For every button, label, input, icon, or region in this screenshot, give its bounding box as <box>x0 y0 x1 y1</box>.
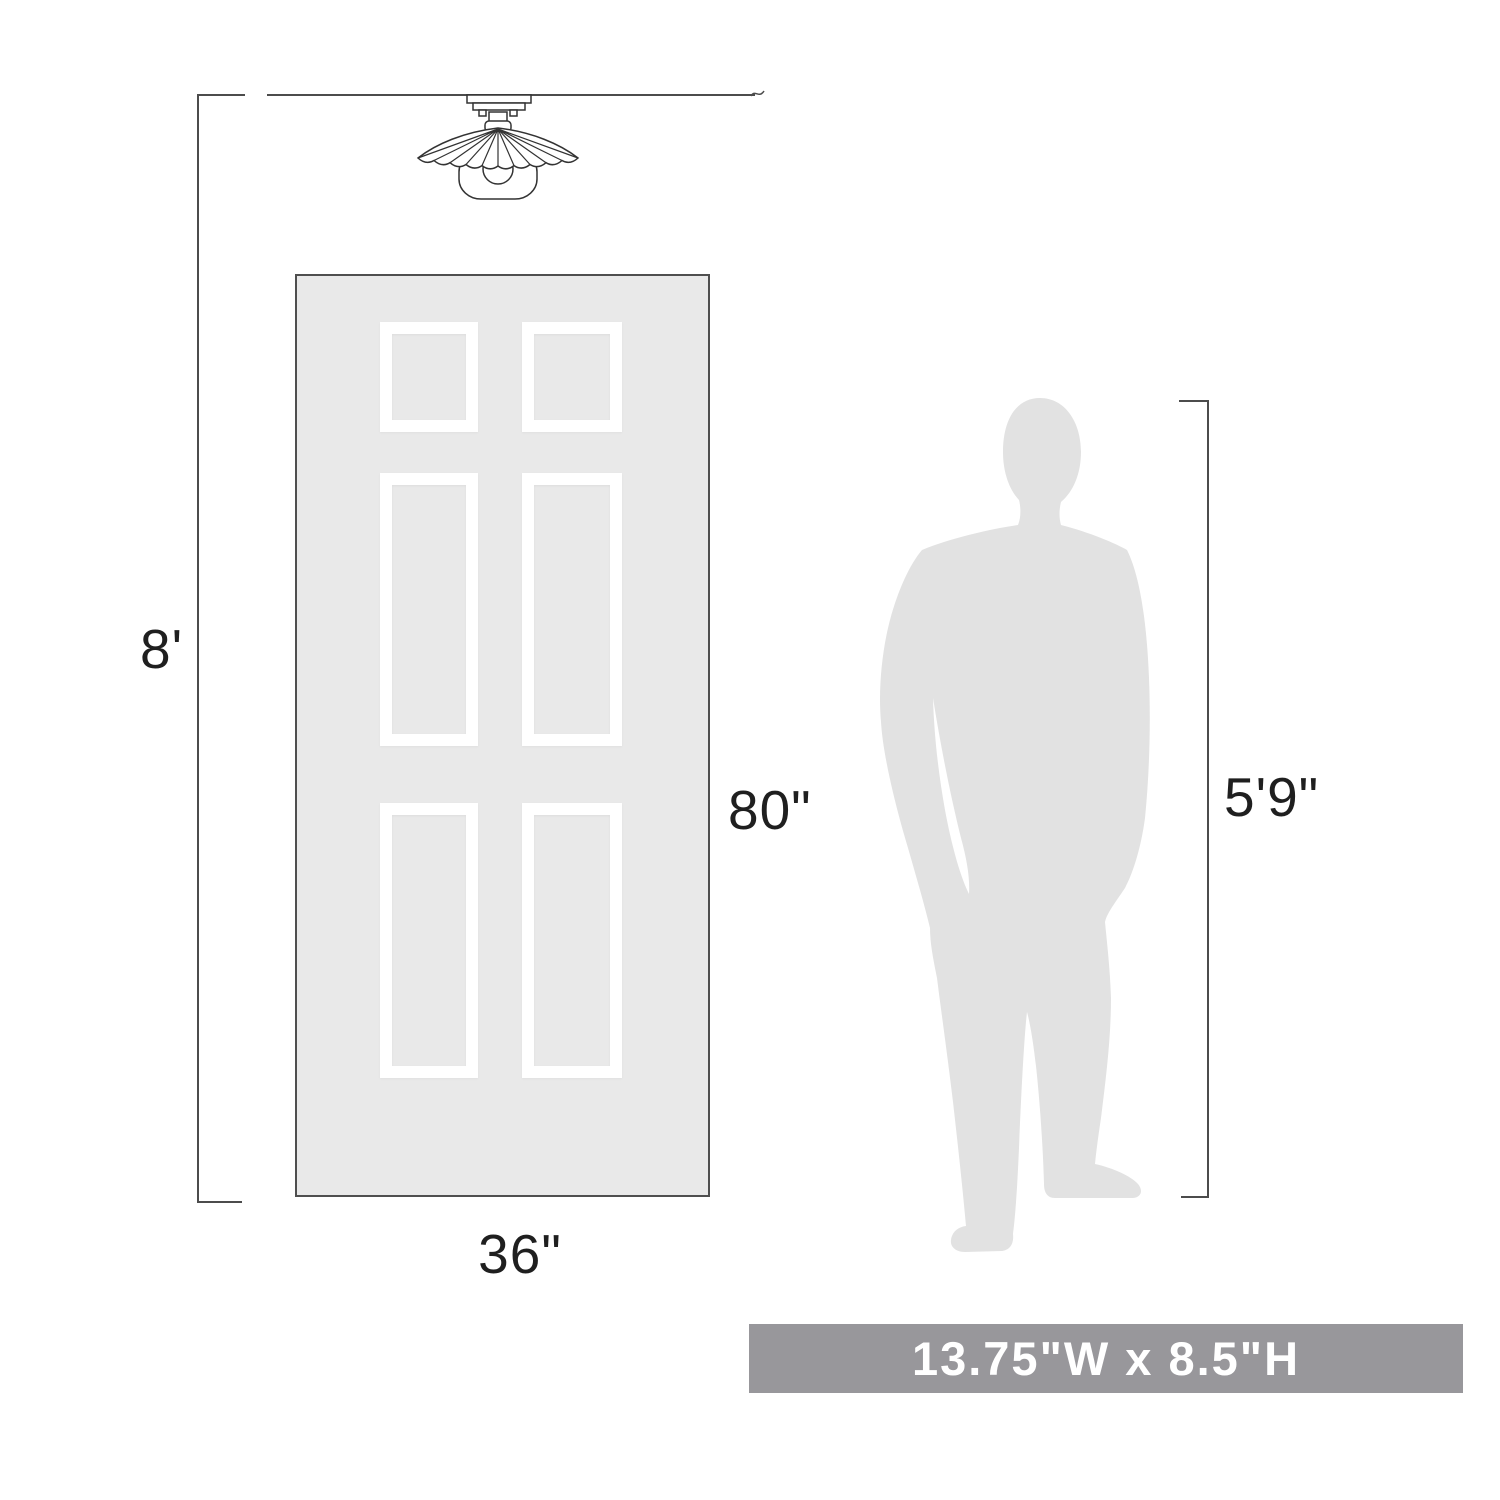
ceiling-height-dimension-line <box>197 94 199 1203</box>
person-height-top-tick <box>1179 400 1209 402</box>
person-height-dimension-line <box>1207 400 1209 1198</box>
door <box>295 274 710 1197</box>
ceiling-height-top-tick <box>197 94 245 96</box>
product-size-text: 13.75"W x 8.5"H <box>912 1335 1300 1382</box>
light-fixture-icon <box>412 92 584 204</box>
man-silhouette-icon <box>875 398 1155 1254</box>
door-width-label: 36" <box>465 1227 575 1282</box>
door-panel <box>380 473 478 746</box>
door-panel <box>522 803 622 1078</box>
ceiling-line-break-icon <box>750 86 766 102</box>
ceiling-height-bottom-tick <box>197 1201 242 1203</box>
door-panel <box>522 473 622 746</box>
scale-diagram: 8' 80" 36" 5'9" <box>0 0 1500 1500</box>
ceiling-height-label: 8' <box>140 622 183 677</box>
door-panel <box>380 322 478 432</box>
person-height-bottom-tick <box>1181 1196 1209 1198</box>
person-height-label: 5'9" <box>1224 770 1319 825</box>
door-panel <box>522 322 622 432</box>
product-size-banner: 13.75"W x 8.5"H <box>749 1324 1463 1393</box>
door-height-label: 80" <box>728 783 812 838</box>
door-panel <box>380 803 478 1078</box>
